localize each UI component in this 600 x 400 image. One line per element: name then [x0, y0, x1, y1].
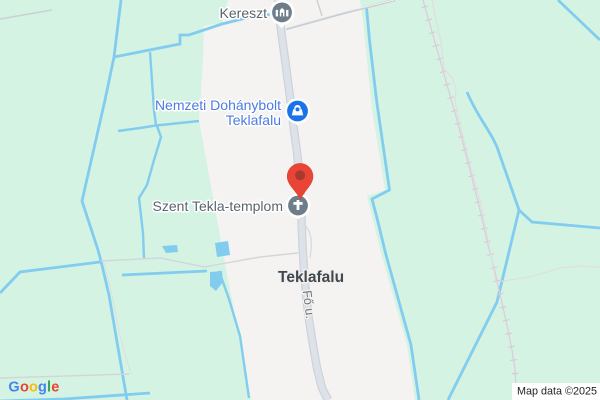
svg-text:Teklafalu: Teklafalu: [278, 269, 344, 286]
svg-text:g: g: [38, 380, 47, 396]
svg-text:Szent Tekla-templom: Szent Tekla-templom: [153, 198, 283, 214]
svg-text:o: o: [20, 380, 29, 396]
svg-text:Kereszt: Kereszt: [220, 5, 268, 21]
svg-text:o: o: [29, 380, 38, 396]
svg-text:Map data ©2025: Map data ©2025: [517, 386, 597, 398]
svg-text:Nemzeti Dohánybolt: Nemzeti Dohánybolt: [155, 97, 281, 113]
svg-text:Teklafalu: Teklafalu: [226, 112, 281, 128]
svg-text:G: G: [8, 380, 19, 396]
svg-text:e: e: [51, 380, 59, 396]
